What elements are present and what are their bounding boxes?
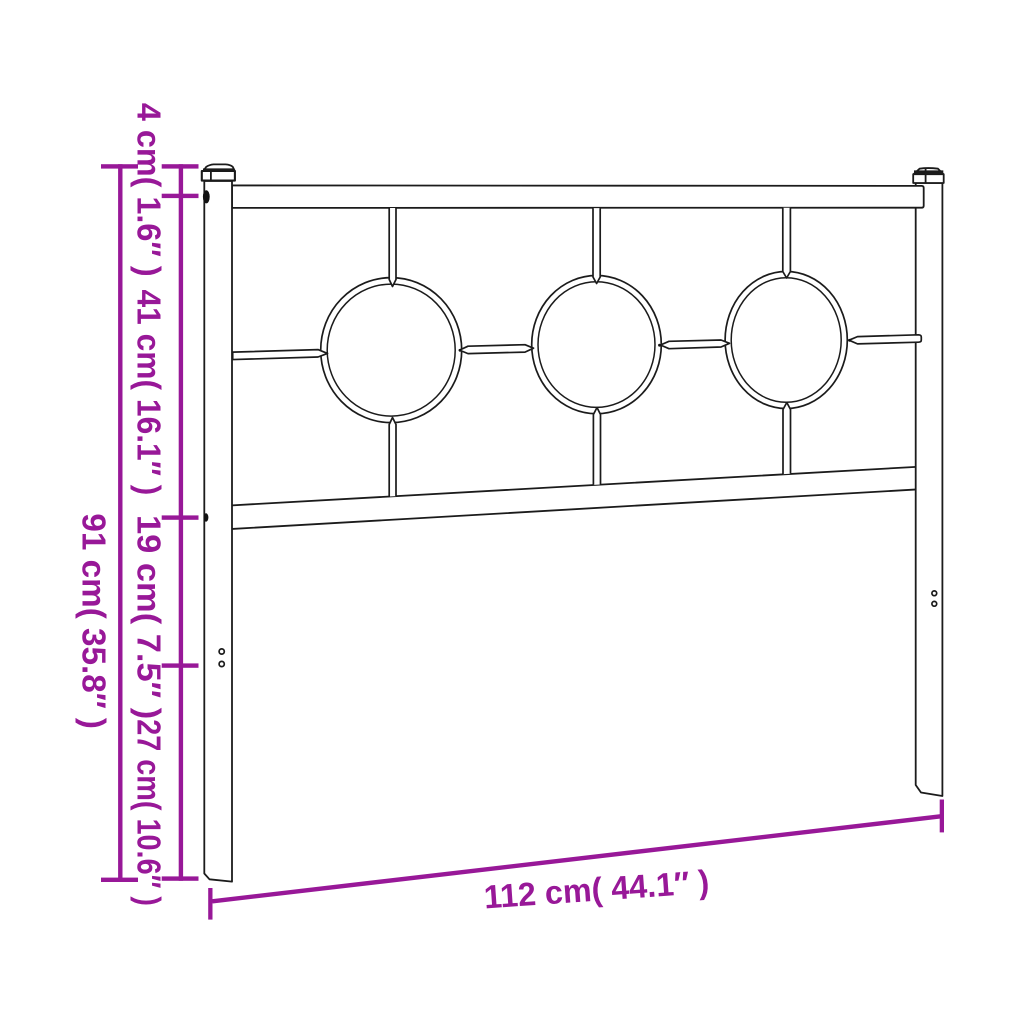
svg-text:19 cm( 7.5″ ): 19 cm( 7.5″ ) <box>130 515 167 719</box>
svg-text:27 cm( 10.6″ ): 27 cm( 10.6″ ) <box>130 719 167 906</box>
svg-text:41 cm( 16.1″ ): 41 cm( 16.1″ ) <box>130 290 167 496</box>
svg-text:112 cm( 44.1″ ): 112 cm( 44.1″ ) <box>483 863 711 916</box>
svg-text:91 cm( 35.8″ ): 91 cm( 35.8″ ) <box>76 513 113 729</box>
svg-text:4 cm( 1.6″ ): 4 cm( 1.6″ ) <box>130 103 167 277</box>
